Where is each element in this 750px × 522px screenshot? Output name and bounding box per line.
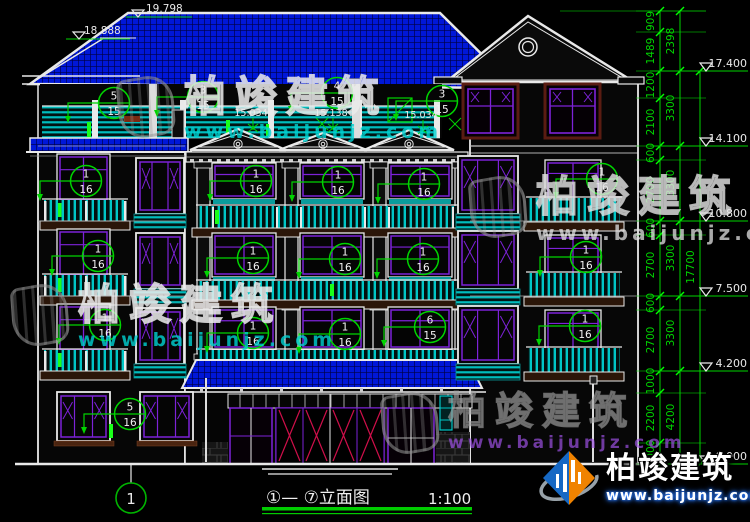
svg-text:2398: 2398 [665, 28, 677, 55]
elevation-drawing: 5153154153151161161161161161161161161161… [0, 0, 750, 522]
brand-url: www.baijunjz.com [606, 488, 750, 504]
svg-text:16: 16 [416, 262, 430, 274]
svg-text:1: 1 [83, 169, 90, 181]
svg-text:2700: 2700 [645, 177, 657, 204]
svg-text:3300: 3300 [665, 245, 677, 272]
drawing-title: ①— ⑦立面图 1:100 [262, 488, 472, 514]
svg-text:16: 16 [579, 260, 593, 272]
svg-text:16: 16 [246, 336, 260, 348]
building-elevation [15, 13, 650, 474]
title-scale: 1:100 [428, 490, 471, 508]
svg-text:1: 1 [421, 172, 428, 184]
svg-text:1: 1 [342, 247, 349, 259]
svg-text:17700: 17700 [685, 250, 697, 283]
title-text: ①— ⑦立面图 [266, 488, 370, 508]
svg-text:3: 3 [200, 85, 207, 97]
svg-text:2100: 2100 [645, 109, 657, 136]
brand-logo-icon [538, 448, 600, 510]
svg-text:5: 5 [111, 91, 118, 103]
axis-number: 1 [126, 490, 136, 508]
svg-text:3300: 3300 [665, 320, 677, 347]
svg-text:16: 16 [79, 184, 93, 196]
svg-text:15.138: 15.138 [314, 108, 347, 119]
svg-text:10.800: 10.800 [709, 207, 748, 220]
svg-text:15.034: 15.034 [234, 108, 267, 119]
svg-text:7.500: 7.500 [716, 282, 748, 295]
svg-text:15: 15 [423, 330, 436, 342]
svg-text:4200: 4200 [665, 404, 677, 431]
svg-text:1489: 1489 [645, 38, 657, 65]
svg-text:4.200: 4.200 [716, 357, 748, 370]
svg-text:1: 1 [250, 321, 257, 333]
svg-text:16: 16 [98, 328, 112, 340]
svg-text:16: 16 [595, 182, 609, 194]
svg-text:1: 1 [95, 244, 102, 256]
svg-text:15.034: 15.034 [404, 110, 437, 121]
svg-text:4: 4 [334, 81, 341, 93]
svg-text:15: 15 [330, 96, 343, 108]
svg-text:1200: 1200 [645, 72, 657, 99]
title-underline-thin [262, 513, 472, 514]
svg-text:19.798: 19.798 [146, 3, 183, 15]
svg-text:18.888: 18.888 [84, 25, 121, 37]
svg-text:16: 16 [249, 184, 263, 196]
svg-text:6: 6 [427, 315, 434, 327]
svg-text:16: 16 [417, 187, 431, 199]
svg-text:1000: 1000 [645, 368, 657, 395]
svg-text:1: 1 [342, 322, 349, 334]
svg-text:1: 1 [582, 314, 589, 326]
svg-text:1: 1 [599, 167, 606, 179]
svg-text:1: 1 [250, 246, 257, 258]
svg-text:3300: 3300 [665, 170, 677, 197]
svg-text:1: 1 [335, 170, 342, 182]
svg-text:5: 5 [127, 402, 134, 414]
svg-text:17.400: 17.400 [709, 57, 748, 70]
svg-text:15: 15 [107, 106, 120, 118]
svg-text:16: 16 [338, 337, 352, 349]
svg-text:2700: 2700 [645, 327, 657, 354]
svg-text:16: 16 [578, 329, 592, 341]
axis-bubble: 1 [116, 464, 146, 513]
svg-text:1: 1 [253, 169, 260, 181]
svg-text:2700: 2700 [645, 252, 657, 279]
svg-text:2200: 2200 [645, 405, 657, 432]
svg-text:16: 16 [246, 261, 260, 273]
svg-text:3: 3 [439, 89, 446, 101]
svg-text:1: 1 [583, 245, 590, 257]
brand-logo: 柏竣建筑 www.baijunjz.com [538, 448, 750, 510]
svg-text:909: 909 [645, 11, 657, 31]
svg-text:16: 16 [338, 262, 352, 274]
brand-name: 柏竣建筑 [606, 454, 750, 484]
svg-text:16: 16 [123, 417, 137, 429]
cad-elevation-canvas: 5153154153151161161161161161161161161161… [0, 0, 750, 522]
title-underline [262, 507, 472, 511]
svg-text:15: 15 [196, 100, 209, 112]
svg-text:16: 16 [331, 185, 345, 197]
svg-text:16: 16 [91, 259, 105, 271]
svg-text:14.100: 14.100 [709, 132, 748, 145]
svg-text:1: 1 [102, 313, 109, 325]
svg-text:3300: 3300 [665, 95, 677, 122]
svg-text:1: 1 [420, 247, 427, 259]
